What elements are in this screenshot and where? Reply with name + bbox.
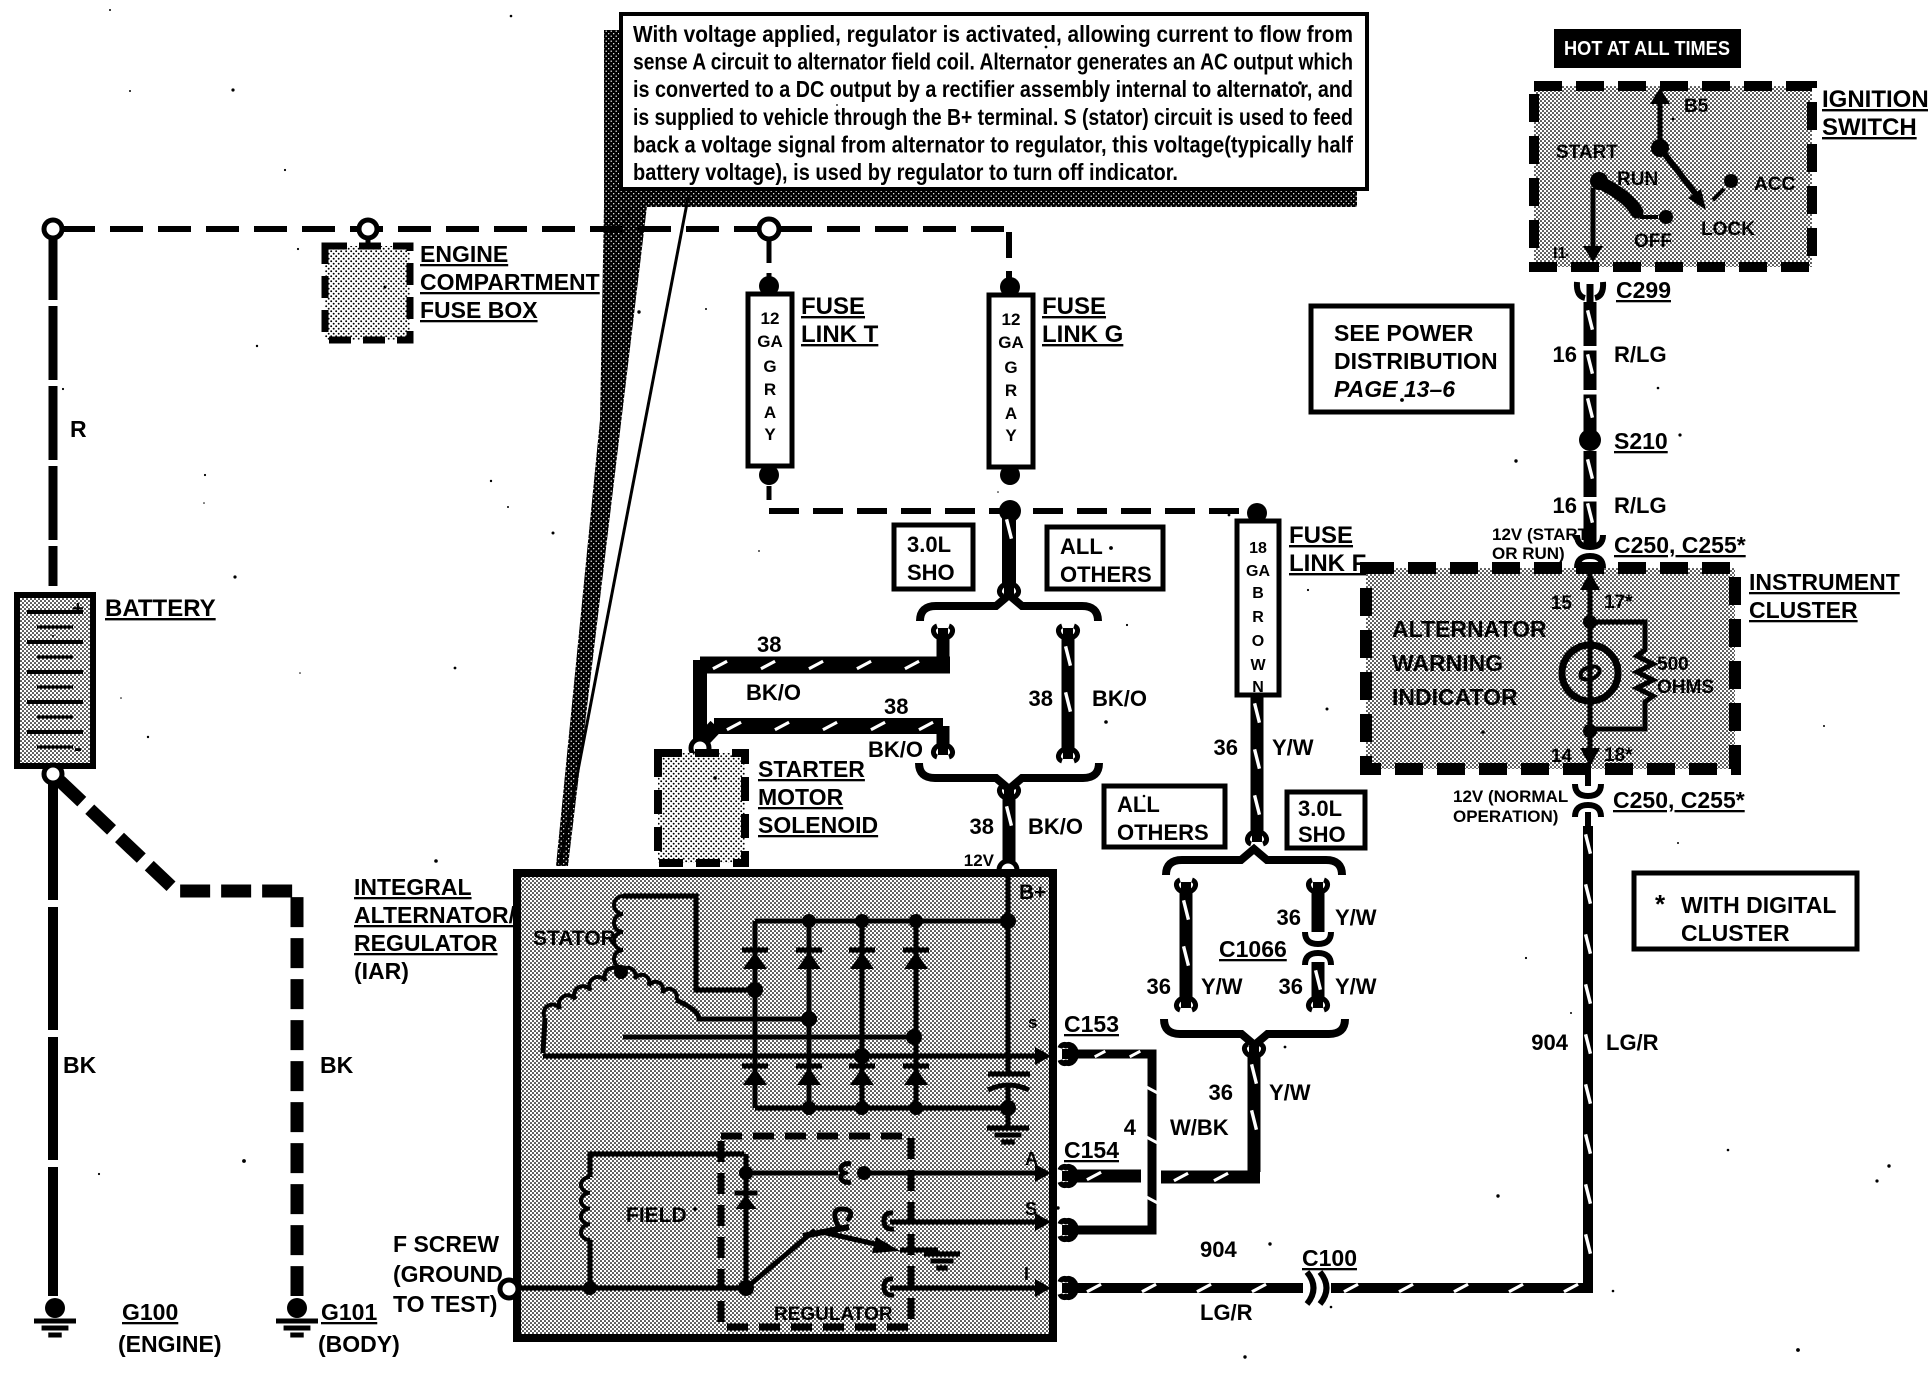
svg-text:is supplied to vehicle through: is supplied to vehicle through the B+ te… [633, 104, 1353, 130]
svg-text:STATOR: STATOR [533, 927, 616, 950]
svg-text:(BODY): (BODY) [318, 1331, 400, 1357]
svg-text:12V: 12V [964, 851, 995, 870]
svg-text:OPERATION): OPERATION) [1453, 807, 1558, 826]
svg-text:O: O [1252, 633, 1264, 650]
svg-text:BK: BK [63, 1052, 97, 1078]
svg-text:BATTERY: BATTERY [105, 595, 216, 622]
svg-text:904: 904 [1200, 1237, 1237, 1262]
svg-text:R: R [1252, 609, 1264, 626]
svg-text:BK/O: BK/O [1028, 814, 1083, 839]
svg-text:OR RUN): OR RUN) [1492, 544, 1565, 563]
svg-text:18: 18 [1249, 540, 1267, 557]
svg-text:TO TEST): TO TEST) [393, 1291, 497, 1317]
svg-text:C153: C153 [1064, 1011, 1119, 1037]
svg-text:BK: BK [320, 1052, 354, 1078]
svg-text:Y/W: Y/W [1201, 974, 1243, 999]
svg-text:ALL: ALL [1117, 792, 1160, 817]
svg-text:With voltage applied, regulato: With voltage applied, regulator is activ… [633, 21, 1353, 47]
svg-text:WITH DIGITAL: WITH DIGITAL [1681, 892, 1836, 918]
svg-text:LINK T: LINK T [801, 321, 879, 348]
svg-text:is converted to a DC output by: is converted to a DC output by a rectifi… [633, 76, 1353, 102]
svg-text:I: I [1024, 1264, 1029, 1284]
svg-text:LOCK: LOCK [1701, 219, 1755, 240]
svg-text:G100: G100 [122, 1299, 178, 1325]
svg-text:Y/W: Y/W [1269, 1080, 1311, 1105]
svg-text:Y: Y [1005, 426, 1017, 445]
svg-text:F SCREW: F SCREW [393, 1231, 499, 1257]
svg-text:36: 36 [1209, 1080, 1233, 1105]
svg-text:FIELD: FIELD [626, 1204, 687, 1227]
svg-text:FUSE: FUSE [1289, 522, 1353, 549]
svg-text:B5: B5 [1684, 96, 1709, 117]
svg-text:R: R [1005, 381, 1017, 400]
svg-text:sense A circuit to alternator: sense A circuit to alternator field coil… [633, 49, 1353, 75]
svg-text:INTEGRAL: INTEGRAL [354, 874, 472, 900]
svg-text:LG/R: LG/R [1606, 1030, 1659, 1055]
svg-text:IGNITION: IGNITION [1822, 86, 1928, 113]
svg-text:12: 12 [1002, 310, 1021, 329]
svg-text:FUSE BOX: FUSE BOX [420, 297, 538, 323]
svg-text:INDICATOR: INDICATOR [1392, 684, 1518, 710]
svg-text:OFF: OFF [1634, 231, 1672, 252]
svg-text:C1066: C1066 [1219, 936, 1287, 962]
svg-text:battery voltage), is used by r: battery voltage), is used by regulator t… [633, 159, 1178, 185]
svg-text:STARTER: STARTER [758, 756, 865, 782]
svg-text:HOT AT ALL TIMES: HOT AT ALL TIMES [1564, 38, 1730, 60]
svg-text:ENGINE: ENGINE [420, 241, 508, 267]
svg-text:*: * [1655, 889, 1666, 919]
svg-text:B+: B+ [1019, 881, 1046, 904]
svg-text:R: R [764, 380, 776, 399]
svg-text:R/LG: R/LG [1614, 342, 1667, 367]
svg-text:CLUSTER: CLUSTER [1681, 920, 1790, 946]
svg-text:16: 16 [1553, 493, 1577, 518]
svg-text:+: + [72, 598, 84, 620]
svg-text:36: 36 [1279, 974, 1303, 999]
svg-text:MOTOR: MOTOR [758, 784, 844, 810]
svg-text:12V (NORMAL: 12V (NORMAL [1453, 787, 1568, 806]
svg-text:3.0L: 3.0L [1298, 796, 1342, 821]
svg-text:C250, C255*: C250, C255* [1613, 787, 1745, 813]
svg-text:C154: C154 [1064, 1137, 1119, 1163]
svg-text:OHMS: OHMS [1657, 677, 1714, 698]
svg-text:15: 15 [1551, 593, 1573, 614]
svg-text:ALTERNATOR: ALTERNATOR [1392, 616, 1547, 642]
svg-text:ACC: ACC [1754, 174, 1795, 195]
svg-text:G: G [1004, 358, 1017, 377]
svg-text:C100: C100 [1302, 1245, 1357, 1271]
svg-text:17*: 17* [1604, 592, 1633, 613]
svg-text:SWITCH: SWITCH [1822, 114, 1917, 141]
svg-text:W: W [1250, 657, 1266, 674]
svg-text:12V (START: 12V (START [1492, 525, 1589, 544]
svg-text:18*: 18* [1604, 745, 1633, 766]
svg-text:I1: I1 [1553, 245, 1566, 262]
svg-text:A: A [764, 403, 776, 422]
svg-text:RUN: RUN [1617, 169, 1658, 190]
svg-text:S210: S210 [1614, 428, 1668, 454]
svg-text:(IAR): (IAR) [354, 958, 409, 984]
svg-text:FUSE: FUSE [1042, 293, 1106, 320]
svg-text:CLUSTER: CLUSTER [1749, 597, 1858, 623]
svg-text:Y/W: Y/W [1335, 905, 1377, 930]
svg-text:C250, C255*: C250, C255* [1614, 532, 1746, 558]
svg-text:BK/O: BK/O [746, 680, 801, 705]
svg-text:GA: GA [757, 332, 783, 351]
svg-text:LINK G: LINK G [1042, 321, 1123, 348]
svg-text:WARNING: WARNING [1392, 650, 1503, 676]
svg-text:FUSE: FUSE [801, 293, 865, 320]
svg-text:R: R [70, 416, 87, 442]
svg-text:12: 12 [761, 309, 780, 328]
svg-text:DISTRIBUTION: DISTRIBUTION [1334, 348, 1498, 374]
svg-text:A: A [1005, 404, 1017, 423]
svg-text:GA: GA [1246, 563, 1270, 580]
svg-text:s: s [1028, 1013, 1037, 1032]
svg-text:Y/W: Y/W [1272, 735, 1314, 760]
svg-text:SHO: SHO [1298, 822, 1346, 847]
svg-text:500: 500 [1657, 654, 1689, 675]
svg-text:INSTRUMENT: INSTRUMENT [1749, 569, 1900, 595]
svg-text:(GROUND: (GROUND [393, 1261, 503, 1287]
svg-text:36: 36 [1277, 905, 1301, 930]
svg-text:W/BK: W/BK [1170, 1115, 1229, 1140]
svg-text:3.0L: 3.0L [907, 532, 951, 557]
svg-text:REGULATOR: REGULATOR [354, 930, 498, 956]
svg-text:OTHERS: OTHERS [1117, 820, 1209, 845]
svg-text:SHO: SHO [907, 560, 955, 585]
svg-text:COMPARTMENT: COMPARTMENT [420, 269, 600, 295]
svg-text:SOLENOID: SOLENOID [758, 812, 878, 838]
svg-text:C299: C299 [1616, 277, 1671, 303]
svg-text:14: 14 [1551, 746, 1573, 767]
svg-text:ALL: ALL [1060, 534, 1103, 559]
svg-text:GA: GA [998, 333, 1024, 352]
svg-text:LINK F: LINK F [1289, 550, 1366, 577]
svg-text:38: 38 [970, 814, 994, 839]
svg-text:4: 4 [1124, 1115, 1137, 1140]
svg-text:38: 38 [884, 694, 908, 719]
svg-text:G: G [763, 357, 776, 376]
svg-text:904: 904 [1531, 1030, 1568, 1055]
svg-text:Y/W: Y/W [1335, 974, 1377, 999]
svg-text:PAGE 13–6: PAGE 13–6 [1334, 376, 1455, 402]
svg-text:36: 36 [1147, 974, 1171, 999]
svg-text:LG/R: LG/R [1200, 1300, 1253, 1325]
svg-text:SEE POWER: SEE POWER [1334, 320, 1474, 346]
svg-text:16: 16 [1553, 342, 1577, 367]
svg-text:BK/O: BK/O [1092, 686, 1147, 711]
svg-text:R/LG: R/LG [1614, 493, 1667, 518]
svg-text:ALTERNATOR/: ALTERNATOR/ [354, 902, 516, 928]
svg-text:back a voltage signal from alt: back a voltage signal from alternator to… [633, 131, 1353, 157]
svg-text:(ENGINE): (ENGINE) [118, 1331, 222, 1357]
svg-text:38: 38 [1029, 686, 1053, 711]
svg-text:B: B [1252, 585, 1264, 602]
svg-text:36: 36 [1214, 735, 1238, 760]
svg-text:REGULATOR: REGULATOR [774, 1304, 893, 1325]
svg-text:-: - [74, 735, 82, 762]
svg-text:Y: Y [764, 425, 776, 444]
svg-text:START: START [1556, 142, 1618, 163]
svg-text:38: 38 [757, 632, 781, 657]
svg-text:N: N [1252, 679, 1264, 696]
svg-text:G101: G101 [321, 1299, 377, 1325]
svg-text:OTHERS: OTHERS [1060, 562, 1152, 587]
svg-text:BK/O: BK/O [868, 737, 923, 762]
